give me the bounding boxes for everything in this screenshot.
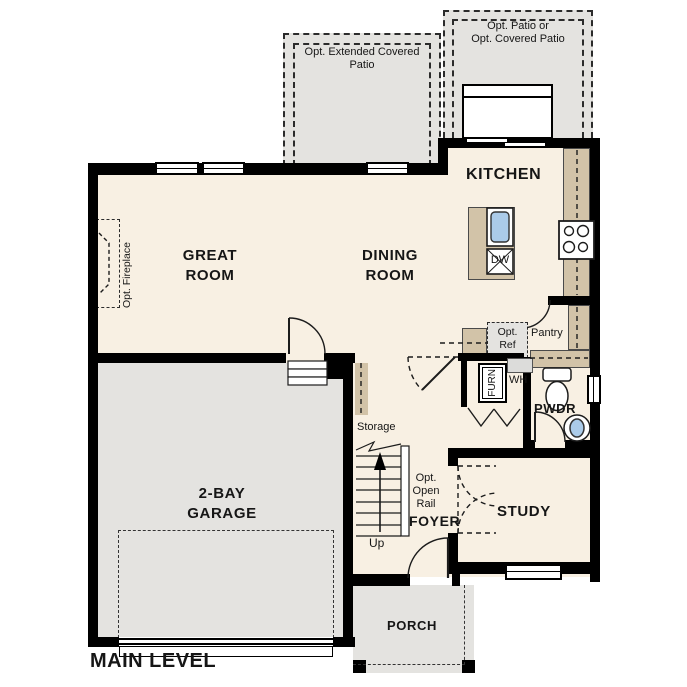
dining-room-label: DINING ROOM <box>340 246 440 287</box>
garage-label: 2-BAY GARAGE <box>164 484 280 525</box>
hall-door <box>408 357 455 390</box>
stairs <box>356 442 409 536</box>
floor-plan: FURN KITCHEN GREAT ROOM DINING ROOM 2-BA… <box>0 0 687 687</box>
island-sink <box>487 208 513 246</box>
fixtures-layer <box>0 0 687 687</box>
furnace-label: FURN <box>487 369 498 397</box>
opt-fireplace-label: Opt. Fireplace <box>121 223 134 308</box>
patio-covered-label: Opt. Patio or Opt. Covered Patio <box>443 20 593 47</box>
patio-extended-label: Opt. Extended Covered Patio <box>287 46 437 73</box>
wh-label: WH <box>509 374 527 387</box>
up-label: Up <box>369 536 384 551</box>
stove <box>559 221 594 259</box>
front-door <box>408 538 448 578</box>
pwdr-label: PWDR <box>534 401 576 417</box>
pwdr-sink <box>564 415 590 441</box>
garage-entry-steps <box>288 361 327 385</box>
opt-open-rail-label: Opt. Open Rail <box>405 472 447 512</box>
pantry-label: Pantry <box>531 327 563 340</box>
porch-label: PORCH <box>377 618 447 634</box>
furnace-box: FURN <box>478 363 507 403</box>
kitchen-label: KITCHEN <box>466 165 541 185</box>
main-level-title: MAIN LEVEL <box>90 649 216 673</box>
stairs-up-arrow <box>374 452 386 532</box>
dw-label: DW <box>487 254 513 267</box>
study-double-doors <box>458 466 498 533</box>
pantry-door <box>522 300 550 328</box>
foyer-label: FOYER <box>409 513 460 530</box>
storage-label: Storage <box>357 421 396 434</box>
furnace-bifold-doors <box>468 408 520 426</box>
opt-ref-label: Opt. Ref <box>488 326 527 352</box>
garage-entry-door <box>289 318 325 354</box>
great-room-label: GREAT ROOM <box>160 246 260 287</box>
fireplace-firebox-dashes <box>99 233 109 294</box>
study-label: STUDY <box>497 503 551 521</box>
